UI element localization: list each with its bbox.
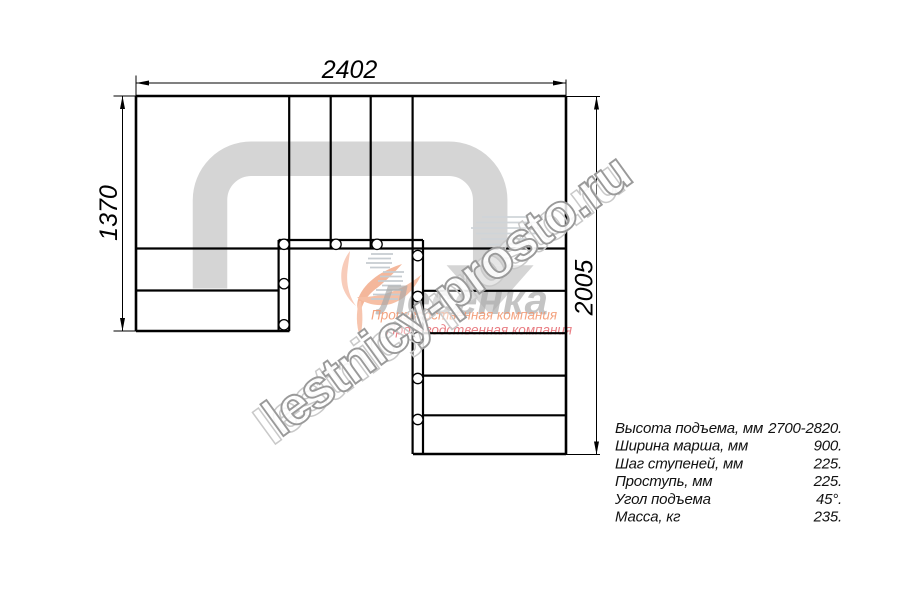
svg-text:225.: 225. — [813, 455, 842, 472]
svg-text:Угол подъема: Угол подъема — [614, 491, 711, 508]
svg-text:2402: 2402 — [321, 56, 378, 84]
svg-text:Проступь, мм: Проступь, мм — [615, 473, 712, 490]
svg-text:45°.: 45°. — [816, 491, 842, 508]
svg-text:2700-2820.: 2700-2820. — [767, 420, 842, 437]
svg-text:900.: 900. — [814, 438, 842, 455]
svg-text:Высота подъема, мм: Высота подъема, мм — [615, 420, 763, 437]
svg-text:235.: 235. — [813, 509, 842, 526]
svg-text:225.: 225. — [813, 473, 842, 490]
svg-text:2005: 2005 — [571, 260, 599, 317]
svg-text:1370: 1370 — [95, 185, 123, 241]
svg-text:Масса, кг: Масса, кг — [615, 509, 681, 526]
svg-text:Ширина марша, мм: Ширина марша, мм — [615, 438, 748, 455]
svg-text:Шаг ступеней, мм: Шаг ступеней, мм — [615, 455, 743, 472]
